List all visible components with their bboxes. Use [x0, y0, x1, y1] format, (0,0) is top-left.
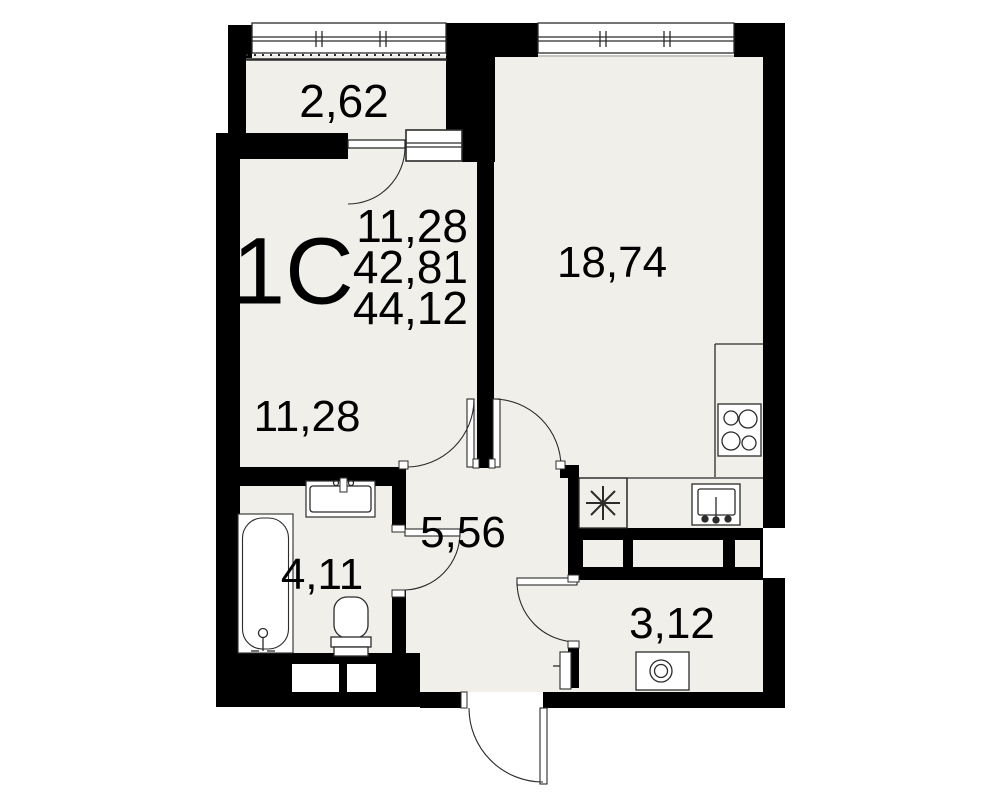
door-jamb: [392, 590, 405, 597]
door-jamb: [473, 459, 479, 468]
door-jamb: [489, 459, 495, 468]
balcony-railing: [246, 55, 447, 60]
stove-icon: [718, 404, 761, 456]
unit-type-label: 1С: [232, 218, 353, 327]
room-label-hall: 5,56: [420, 508, 506, 558]
toilet-icon: [331, 597, 371, 656]
balcony-door: [348, 140, 405, 204]
hall-left-door: [399, 399, 479, 469]
unit-area-stack: 11,28 42,81 44,12: [340, 206, 468, 329]
electrical-panel: [553, 652, 571, 689]
floor-plan: 2,62 18,74 11,28 5,56 4,11 3,12 1С 11,28…: [0, 0, 1000, 800]
storage-door: [517, 575, 579, 648]
room-label-bath: 4,11: [281, 550, 363, 600]
washing-machine-icon: [636, 652, 689, 690]
living-window: [538, 23, 734, 56]
fridge-asterisk-icon: [579, 478, 627, 528]
hall-right-door: [489, 399, 565, 469]
door-jamb: [568, 575, 579, 582]
door-jamb: [568, 641, 579, 648]
door-jamb: [461, 692, 467, 708]
door-jamb: [399, 461, 408, 469]
entry-door: [461, 692, 547, 784]
room-label-room: 11,28: [254, 392, 361, 442]
room-label-balcony: 2,62: [299, 74, 389, 128]
bathroom-sink-icon: [306, 478, 375, 517]
room-label-storage: 3,12: [629, 599, 715, 649]
kitchen-sink-icon: [692, 484, 740, 525]
linework-overlay: [0, 0, 1000, 800]
door-jamb: [556, 461, 565, 469]
room-label-living: 18,74: [557, 238, 667, 288]
door-jamb: [392, 525, 405, 532]
area-total: 44,12: [340, 288, 468, 329]
balcony-glazing-window: [252, 23, 446, 53]
balcony-room-window: [406, 130, 462, 161]
